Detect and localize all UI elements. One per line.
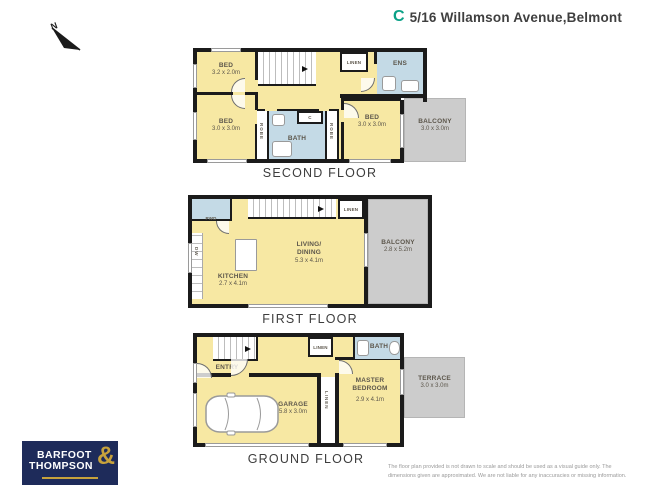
stairs: [213, 337, 258, 361]
bed2-dims: 3.0 x 3.0m: [197, 126, 255, 134]
page-title: 5/16 Willamson Avenue,Belmont: [410, 10, 622, 25]
window: [211, 48, 241, 52]
disclaimer-line1: The floor plan provided is not drawn to …: [388, 463, 654, 472]
floor-plan-ground: TERRACE 3.0 x 3.0m LINEN: [193, 333, 465, 447]
balcony-dims: 2.8 x 5.2m: [368, 247, 428, 255]
master-label-1: MASTER: [340, 377, 400, 385]
wall: [255, 92, 258, 110]
header: C 5/16 Willamson Avenue,Belmont: [393, 9, 622, 25]
pwd-label: PWD: [205, 216, 216, 221]
north-compass-icon: N: [40, 16, 90, 60]
barfoot-thompson-logo: BARFOOT THOMPSON &: [22, 441, 118, 485]
living-dining-room: LIVING/ DINING 5.3 x 4.1m: [254, 241, 364, 266]
second-bath-block: ROBE BATH C ROBE: [257, 109, 339, 159]
second-linen-cupboard: LINEN: [340, 52, 368, 72]
window: [188, 243, 192, 273]
toilet: [272, 114, 285, 126]
linen-label: LINEN: [313, 345, 328, 350]
master-bedroom: MASTER BEDROOM 2.9 x 4.1m: [340, 377, 400, 405]
bath-label: BATH: [269, 135, 325, 143]
brand-line2: THOMPSON: [29, 460, 93, 472]
linen-label: LINEN: [347, 60, 362, 65]
wall: [341, 98, 401, 101]
wall: [193, 333, 197, 447]
kitchen-room: KITCHEN 2.7 x 4.1m: [198, 273, 268, 289]
dishwasher-label: DW: [194, 247, 199, 257]
sliding-door: [364, 233, 368, 267]
bed3-dims: 3.0 x 3.0m: [344, 122, 400, 130]
wall: [335, 373, 339, 443]
garage-door: [205, 443, 309, 447]
window: [343, 443, 387, 447]
disclaimer-line2: dimensions given are approximated. We ar…: [388, 472, 654, 481]
agency-logo-icon: C: [393, 9, 405, 25]
master-label-2: BEDROOM: [340, 385, 400, 393]
window: [349, 159, 391, 163]
floor-plan-second: BALCONY 3.0 x 3.0m LINEN: [193, 48, 466, 163]
balcony-label: BALCONY: [368, 239, 428, 247]
garage-dims: 5.8 x 3.0m: [269, 409, 317, 417]
terrace: TERRACE 3.0 x 3.0m: [404, 357, 465, 418]
first-balcony: BALCONY 2.8 x 5.2m: [368, 199, 428, 304]
robe-left-label: ROBE: [259, 123, 264, 140]
master-dims: 2.9 x 4.1m: [340, 397, 400, 405]
closet-c: C: [297, 111, 323, 124]
living-label-2: DINING: [254, 249, 364, 257]
powder-room: PWD: [192, 199, 232, 221]
wall: [428, 195, 432, 308]
second-bathroom: BATH C: [269, 111, 325, 159]
ground-floor-label: GROUND FLOOR: [193, 452, 419, 466]
bed1-room: BED 3.2 x 2.0m: [197, 62, 255, 78]
second-floor-label: SECOND FLOOR: [193, 166, 447, 180]
second-ensuite: ENS: [377, 52, 423, 94]
brand-gold-bar: [42, 477, 98, 479]
toilet: [382, 76, 396, 91]
living-dims: 5.3 x 4.1m: [254, 258, 364, 266]
first-linen-cupboard: LINEN: [338, 199, 364, 219]
garage-room: GARAGE 5.8 x 3.0m: [269, 401, 317, 417]
closet-c-label: C: [308, 115, 311, 120]
disclaimer-text: The floor plan provided is not drawn to …: [388, 463, 654, 481]
bed1-label: BED: [197, 62, 255, 70]
ground-linen-cupboard: LINEN: [308, 337, 333, 357]
terrace-door: [400, 369, 404, 395]
terrace-dims: 3.0 x 3.0m: [404, 383, 465, 391]
bed2-label: BED: [197, 118, 255, 126]
kitchen-label: KITCHEN: [198, 273, 268, 281]
linen-label: LINEN: [344, 207, 359, 212]
robe-right-label: ROBE: [329, 123, 334, 140]
window: [248, 304, 328, 308]
second-balcony: BALCONY 3.0 x 3.0m: [404, 98, 466, 162]
brand-ampersand: &: [97, 444, 115, 469]
linen-robe-label: LINEN: [324, 391, 329, 410]
window: [193, 393, 197, 427]
wall: [245, 92, 255, 95]
bed2-room: BED 3.0 x 3.0m: [197, 118, 255, 134]
stairs: [248, 199, 336, 219]
wall: [197, 92, 233, 95]
balcony-dims: 3.0 x 3.0m: [404, 126, 466, 134]
stairs-direction-arrow: [318, 206, 327, 212]
garage-label: GARAGE: [269, 401, 317, 409]
window: [207, 159, 247, 163]
sliding-door: [400, 114, 404, 148]
balcony-label: BALCONY: [404, 118, 466, 126]
first-floor-label: FIRST FLOOR: [188, 312, 432, 326]
floor-plan-page: N C 5/16 Willamson Avenue,Belmont BALCON…: [0, 0, 658, 493]
stairs: [258, 52, 316, 86]
stairs-direction-arrow: [245, 346, 254, 352]
kitchen-dims: 2.7 x 4.1m: [198, 281, 268, 289]
stairs-direction-arrow: [302, 66, 311, 72]
bath-label: BATH: [365, 343, 393, 351]
terrace-label: TERRACE: [404, 375, 465, 383]
bed1-dims: 3.2 x 2.0m: [197, 70, 255, 78]
ens-label: ENS: [377, 60, 423, 68]
vanity: [401, 80, 419, 92]
ground-bathroom: BATH: [353, 337, 400, 359]
floor-plan-first: BALCONY 2.8 x 5.2m PWD LINEN DW LI: [188, 195, 432, 308]
wall: [249, 373, 321, 377]
living-label-1: LIVING/: [254, 241, 364, 249]
